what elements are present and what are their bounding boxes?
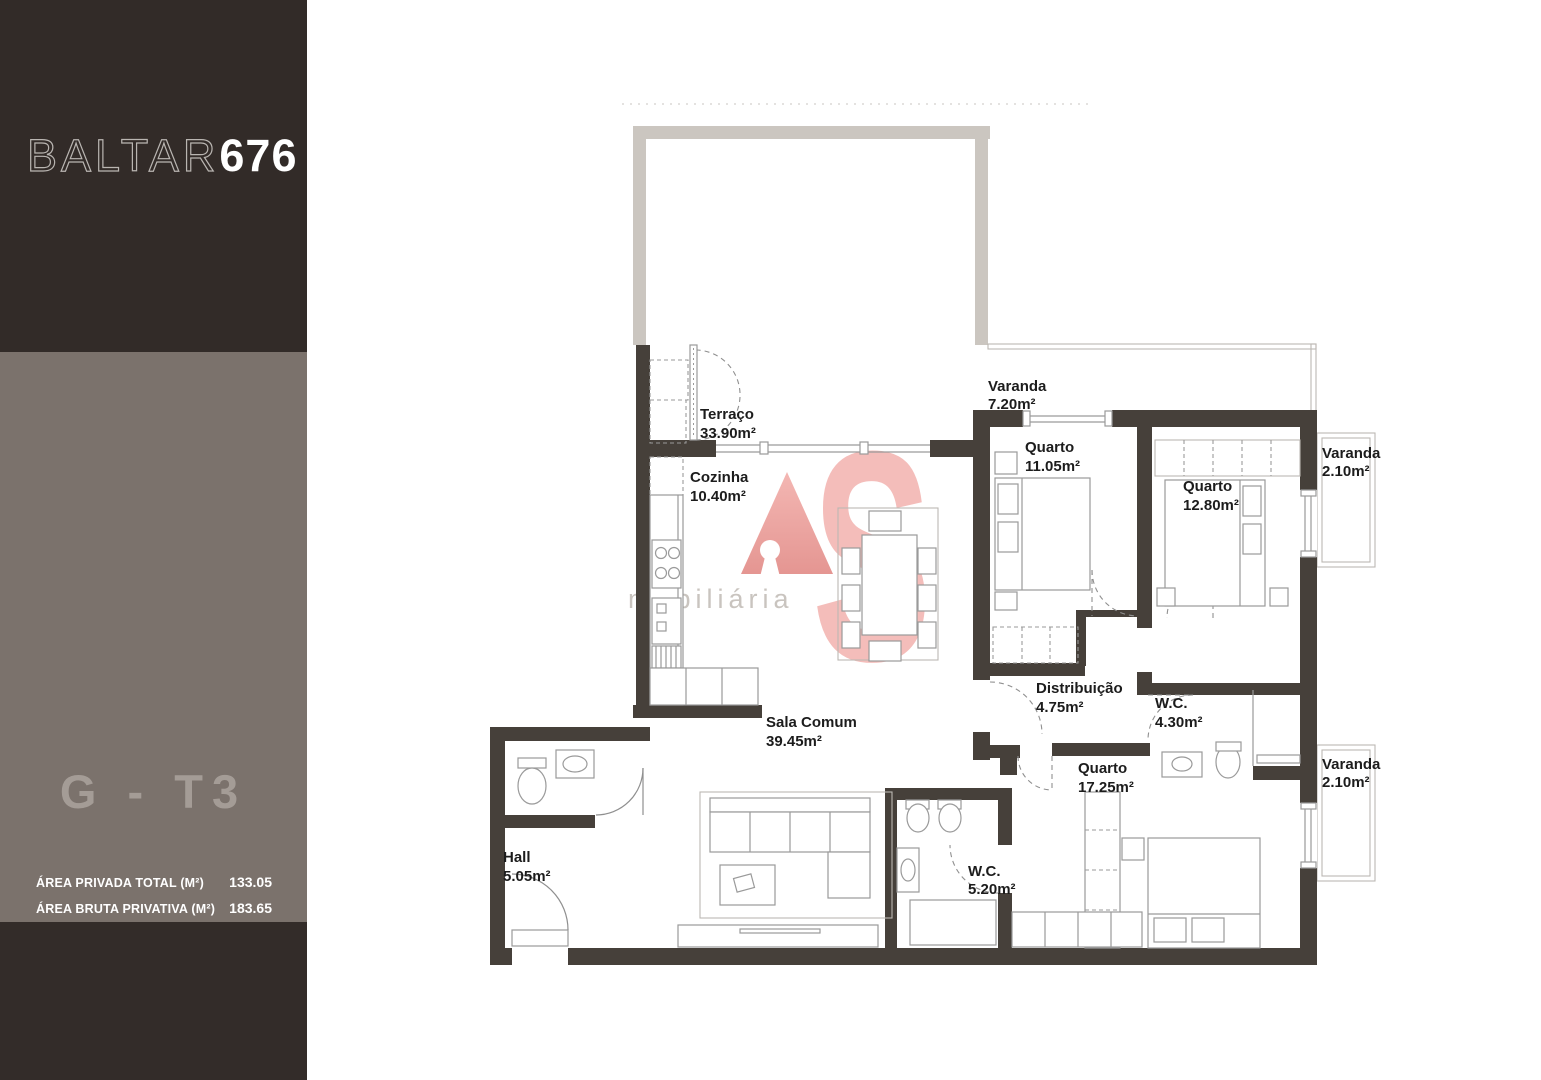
baltar-logo: BALTAR676 [27, 130, 297, 182]
toilet-icon [518, 768, 546, 804]
room-label: Distribuição [1036, 680, 1123, 697]
sink-icon [1162, 752, 1202, 777]
shower-icon [910, 900, 996, 945]
sidebar-info-panel: G - T3 ÁREA PRIVADA TOTAL (M²) 133.05 ÁR… [0, 352, 307, 922]
sidebar-header-panel: BALTAR676 [0, 0, 307, 352]
room-label: Cozinha [690, 469, 749, 486]
room-label: Quarto [1078, 760, 1127, 777]
room-area: 4.30m² [1155, 714, 1203, 731]
room-area: 5.20m² [968, 881, 1016, 898]
room-label: Quarto [1183, 478, 1232, 495]
room-area: 2.10m² [1322, 463, 1370, 480]
unit-title: G - T3 [0, 764, 307, 819]
room-label: Varanda [1322, 445, 1381, 462]
floorplan-datasheet-page: BALTAR676 G - T3 ÁREA PRIVADA TOTAL (M²)… [0, 0, 1541, 1080]
room-area: 7.20m² [988, 396, 1036, 413]
spec-label: ÁREA BRUTA PRIVATIVA (M²) [36, 902, 215, 916]
room-area: 11.05m² [1025, 458, 1080, 475]
room-area: 5.05m² [503, 868, 551, 885]
spec-value: 183.65 [229, 900, 272, 916]
stove-icon [652, 540, 681, 588]
sink-icon [556, 750, 594, 778]
room-area: 10.40m² [690, 488, 746, 505]
room-label: Varanda [1322, 756, 1381, 773]
room-area: 17.25m² [1078, 779, 1134, 796]
bedroom3-furniture [1012, 792, 1260, 948]
room-label: Varanda [988, 378, 1047, 395]
room-label: Hall [503, 849, 531, 866]
sink-icon [897, 848, 919, 892]
room-area: 12.80m² [1183, 497, 1239, 514]
bedroom2-furniture [1155, 440, 1300, 606]
spec-row: ÁREA BRUTA PRIVATIVA (M²) 183.65 [36, 900, 272, 916]
tv-bench [678, 925, 878, 947]
room-label: W.C. [1155, 695, 1188, 712]
toilet-icon [939, 804, 961, 832]
spec-value: 133.05 [229, 874, 272, 890]
spec-label: ÁREA PRIVADA TOTAL (M²) [36, 876, 204, 890]
room-label: Sala Comum [766, 714, 857, 731]
room-area: 33.90m² [700, 425, 756, 442]
sidebar-footer-panel: GERAL@BEFFER.PT 221 117 222 BEFFER BUILD… [0, 922, 307, 1080]
floorplan-drawing: S mobiliária [307, 0, 1541, 1080]
sidebar: BALTAR676 G - T3 ÁREA PRIVADA TOTAL (M²)… [0, 0, 307, 1080]
room-area: 39.45m² [766, 733, 822, 750]
logo-wordmark: BALTAR [27, 130, 219, 181]
bidet-icon [907, 804, 929, 832]
bedroom1-furniture [993, 452, 1090, 663]
room-label: W.C. [968, 863, 1001, 880]
logo-number: 676 [219, 130, 297, 181]
room-area: 4.75m² [1036, 699, 1084, 716]
room-label: Terraço [700, 406, 754, 423]
room-label: Quarto [1025, 439, 1074, 456]
hall-wc-fixtures [518, 750, 594, 804]
terrace-walls [633, 126, 990, 345]
sofa-set [678, 792, 892, 947]
spec-row: ÁREA PRIVADA TOTAL (M²) 133.05 [36, 874, 272, 890]
room-area: 2.10m² [1322, 774, 1370, 791]
